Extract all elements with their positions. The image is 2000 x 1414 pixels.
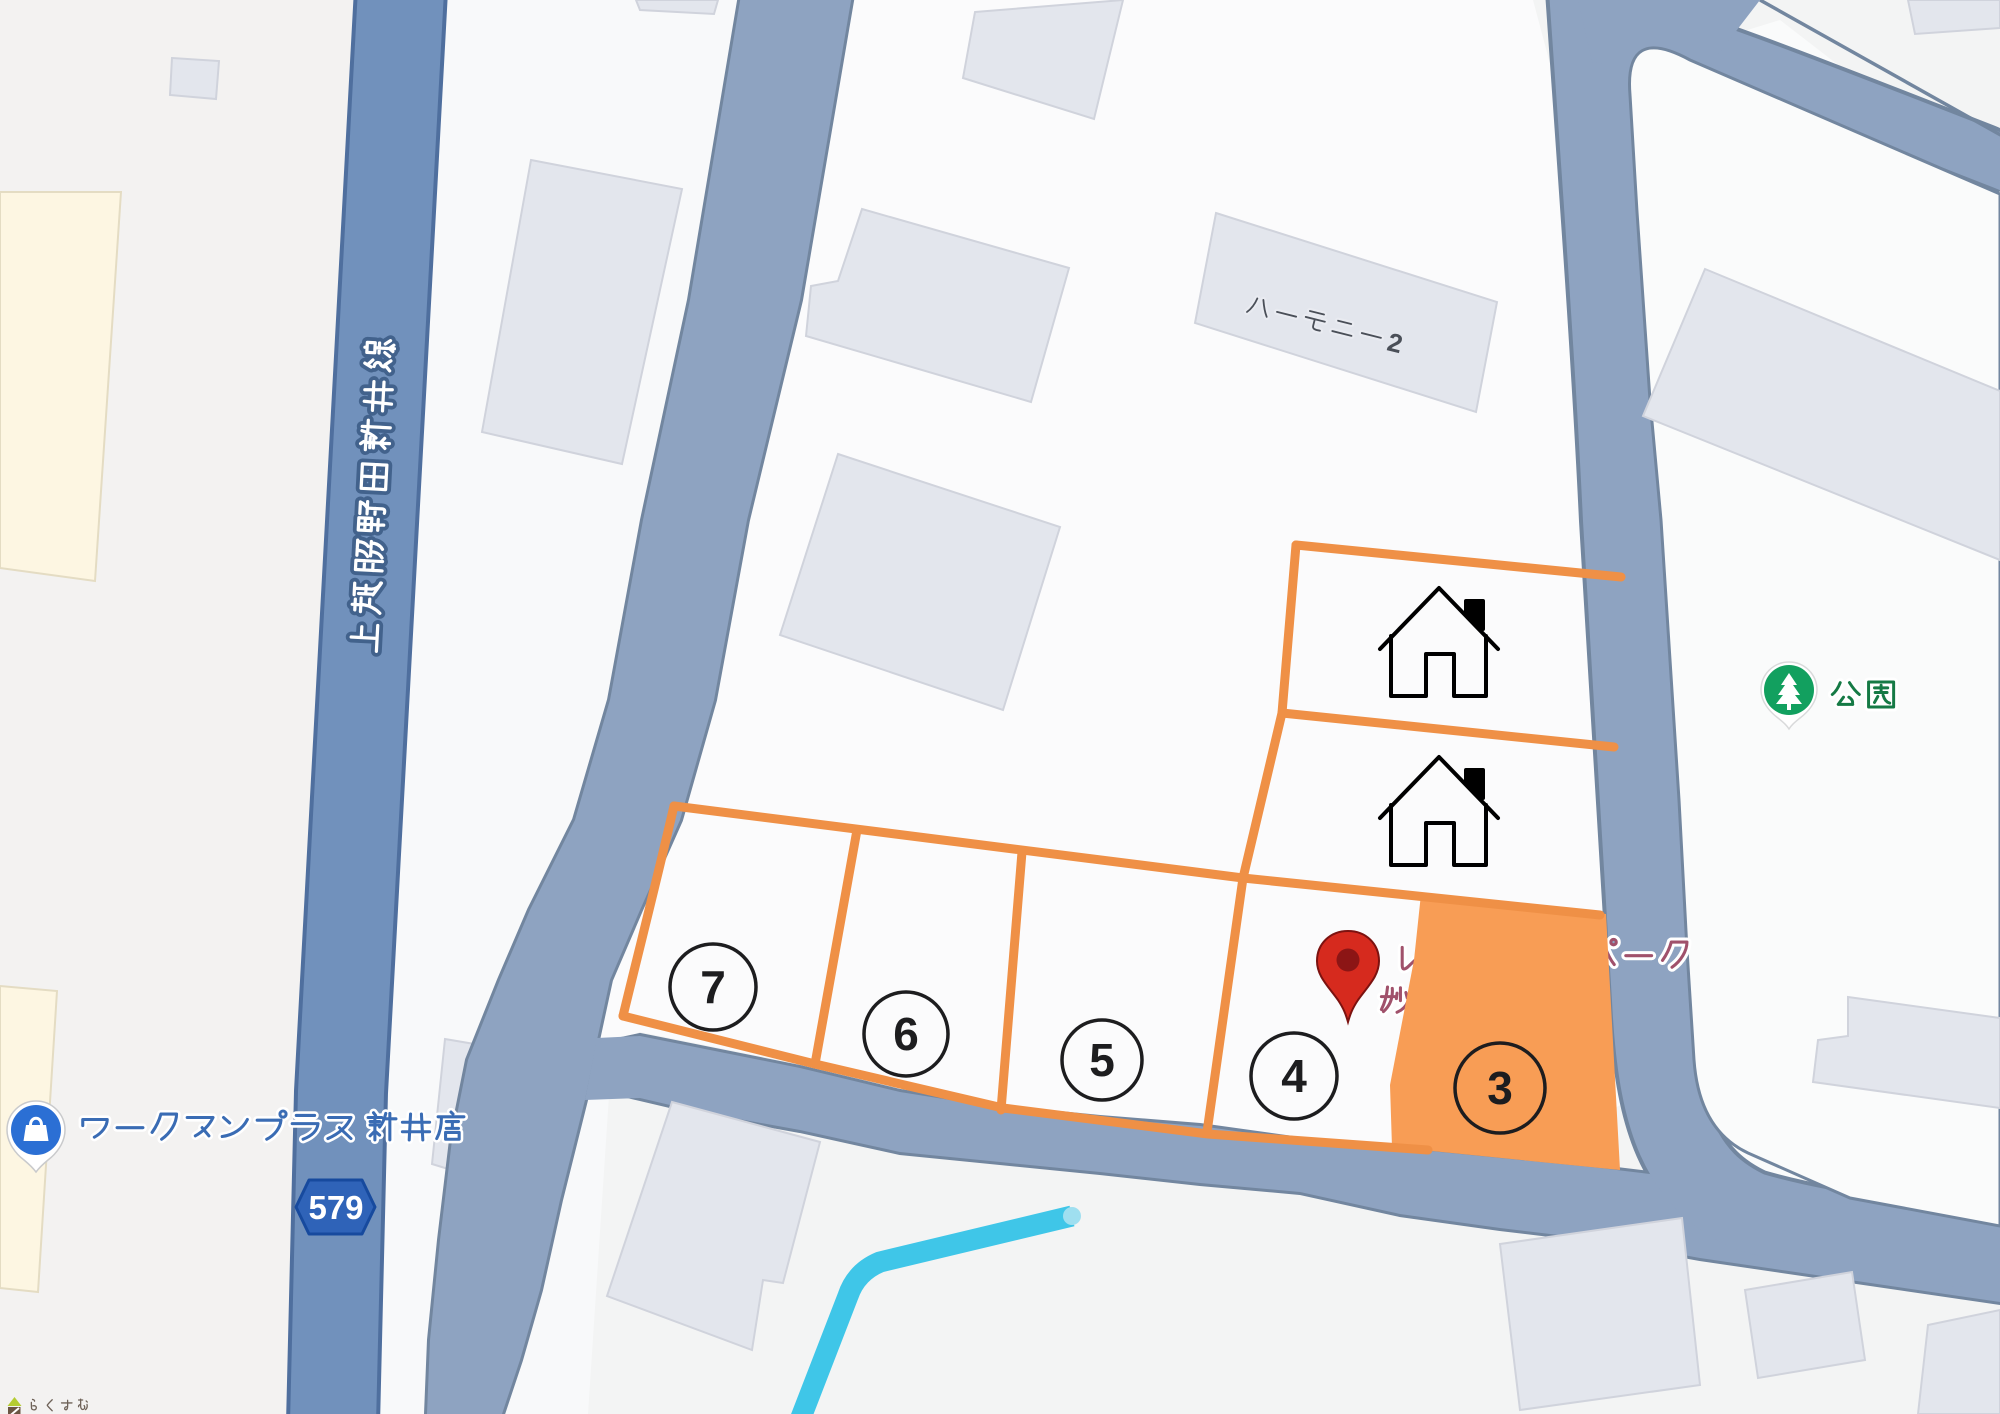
svg-text:6: 6: [893, 1008, 919, 1060]
svg-text:7: 7: [700, 961, 726, 1013]
svg-text:3: 3: [1487, 1062, 1513, 1114]
svg-text:4: 4: [1281, 1050, 1307, 1102]
svg-text:579: 579: [308, 1189, 363, 1226]
svg-text:5: 5: [1089, 1034, 1115, 1086]
